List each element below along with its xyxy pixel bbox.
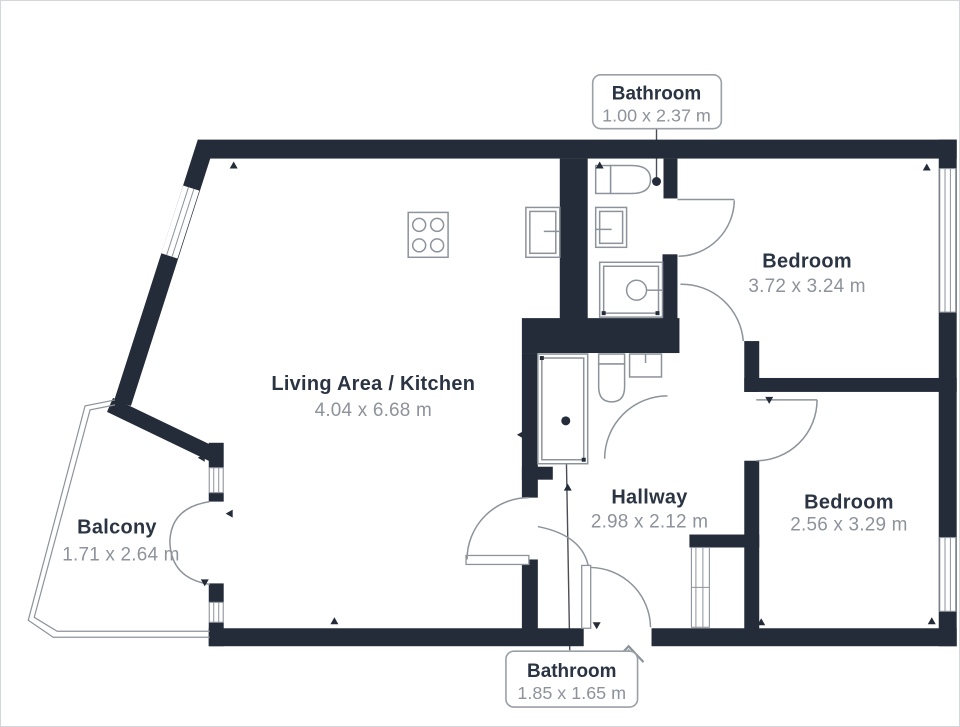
room-label-living-area: Living Area / Kitchen [271, 373, 475, 395]
room-labels: Living Area / Kitchen 4.04 x 6.68 m Balc… [62, 250, 907, 565]
bathroom-bottom-shower-icon [538, 354, 588, 464]
callout-dims-bathroom-top: 1.00 x 2.37 m [602, 106, 711, 126]
room-dims-bedroom-bottom: 2.56 x 3.29 m [790, 515, 907, 536]
window-bedroom-top-icon [940, 169, 956, 313]
room-dims-bedroom-top: 3.72 x 3.24 m [748, 276, 865, 297]
wall-balcony-seg2 [209, 493, 224, 502]
wall-bathroom-south [522, 467, 553, 480]
callout-bathroom-top: Bathroom 1.00 x 2.37 m [593, 75, 722, 129]
room-label-bedroom-bottom: Bedroom [804, 492, 894, 514]
doors-layer [170, 199, 817, 628]
window-angled-wall-icon [161, 185, 199, 258]
wall-top [198, 140, 957, 159]
wall-angled-balcony [107, 398, 213, 463]
wall-bathroom-east-lower [662, 254, 677, 353]
window-bedroom-bottom-icon [940, 538, 956, 612]
door-bathroom-top-icon [677, 199, 734, 256]
door-balcony-french-icon [170, 502, 210, 585]
wall-closet-top [689, 535, 759, 548]
callout-dims-bathroom-bottom: 1.85 x 1.65 m [517, 683, 626, 703]
door-bathroom-bottom-icon [605, 396, 668, 459]
room-label-hallway: Hallway [611, 487, 687, 509]
leader-dot-bathroom-top [652, 177, 661, 186]
bathroom-top-toilet-icon [596, 166, 651, 194]
wall-balcony-seg4 [209, 622, 224, 646]
wall-bedrooms-divider [744, 378, 956, 392]
callout-label-bathroom-bottom: Bathroom [527, 661, 616, 682]
wall-bathroom-east-upper [663, 159, 677, 199]
door-bedroom-bottom-icon [756, 400, 817, 461]
callout-label-bathroom-top: Bathroom [612, 84, 701, 105]
kitchen-sink-icon [526, 207, 560, 257]
wall-angled-upper-left [114, 140, 215, 406]
wall-living-hallway-lower [522, 559, 538, 634]
floor-plan: Living Area / Kitchen 4.04 x 6.68 m Balc… [1, 1, 959, 726]
door-bedroom-top-icon [680, 284, 743, 341]
stove-icon [408, 212, 448, 257]
cupboard-icon [691, 547, 709, 627]
door-entry-icon [582, 565, 651, 628]
wall-bottom-right [652, 628, 957, 646]
window-balcony-upper-icon [209, 468, 223, 493]
wall-kitchen-column [560, 159, 588, 323]
room-dims-balcony: 1.71 x 2.64 m [62, 544, 179, 565]
room-label-balcony: Balcony [77, 517, 157, 539]
wall-center-band [522, 318, 680, 353]
door-living-hallway-icon [466, 498, 589, 569]
bathroom-bottom-sink-icon [630, 354, 662, 377]
bathroom-bottom-toilet-icon [599, 354, 625, 402]
room-label-bedroom-top: Bedroom [762, 250, 852, 272]
floorplan-page: Living Area / Kitchen 4.04 x 6.68 m Balc… [0, 0, 960, 727]
bathroom-top-shower-icon [600, 262, 663, 317]
bathroom-top-sink-icon [596, 207, 627, 247]
wall-balcony-seg3 [209, 583, 224, 602]
leader-dot-bathroom-bottom [561, 416, 570, 425]
room-dims-living-area: 4.04 x 6.68 m [315, 400, 432, 421]
callout-bathroom-bottom: Bathroom 1.85 x 1.65 m [506, 651, 638, 707]
window-balcony-lower-icon [209, 602, 223, 622]
room-dims-hallway: 2.98 x 2.12 m [591, 512, 708, 533]
wall-balcony-seg1 [209, 443, 224, 468]
